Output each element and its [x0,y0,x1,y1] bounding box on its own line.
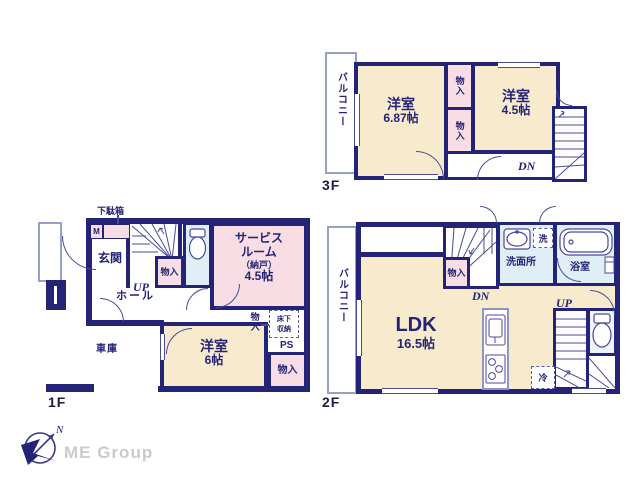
service-room-line4: 4.5帖 [245,270,274,284]
hall-3f [445,151,560,180]
laundry-space: 洗 [533,228,553,248]
stairs-2f-dn-label: DN [472,289,489,304]
floorplan-canvas: バルコニー 洋室 6.87帖 物入 物入 洋室 4.5帖 DN [0,0,640,480]
service-room-label: サービス ルーム （納戸） 4.5帖 [214,232,304,284]
window-3f-balcony [354,94,360,146]
staircase-2f-winder [589,358,615,388]
balcony-3f: バルコニー [325,52,357,174]
staircase-2f-up-treads [556,311,586,387]
toilet-room-2f [587,308,617,356]
fridge-space: 冷 [531,366,555,389]
shoe-cabinet-label: 下駄箱 [96,206,125,216]
toilet-icon-2f [590,313,614,351]
door-arc-garage [62,236,96,270]
garage-bay [38,222,62,282]
shoe-cabinet [103,224,130,239]
stairs-3f-dn-label: DN [518,159,535,174]
shoe-cabinet-leader [117,215,119,224]
garage-pillar-slit [54,286,57,304]
balcony-3f-label: バルコニー [335,72,347,127]
room-3f-45-name: 洋室 [502,88,530,104]
closet-3f-a: 物入 [445,62,474,110]
service-room-line2: ルーム [241,246,277,260]
window-2f-balcony [356,300,362,356]
compass-icon: N [16,420,68,472]
hall-label: ホール [116,290,155,303]
closet-1f-se: 物入 [268,352,307,389]
closet-3f-b: 物入 [445,107,474,154]
corner-closet-label: 物入 [248,312,261,332]
closet-1f-se-label: 物入 [278,365,298,377]
toilet-room-1f [183,222,212,288]
underfloor-storage: 床下 収納 [269,310,299,338]
staircase-3f [552,106,587,182]
window-3f-north [498,62,540,68]
floor3-label: 3F [322,177,340,193]
ldk-label: LDK 16.5帖 [380,314,452,352]
entrance-label: 玄関 [98,252,122,266]
door-arc-1f-toilet [186,288,208,310]
corner-closet-text: 物入 [249,312,259,332]
door-2f-south [572,388,606,394]
closet-3f-b-label: 物入 [454,121,464,141]
balcony-2f-label: バルコニー [336,268,348,323]
wall-1f-hall-bottom [86,320,164,326]
closet-1f-stairs: 物入 [155,256,184,288]
room-3f-45-size: 4.5帖 [502,104,531,118]
room-1f-6-size: 6帖 [205,354,224,368]
window-2f-south [382,388,438,394]
corner-closet-leader [261,324,269,326]
door-arc-2f-washroom [480,206,497,223]
closet-2f: 物入 [443,257,470,289]
brand-logo-text: ME Group [64,443,153,463]
balcony-2f: バルコニー [327,226,357,394]
garage-front-wall [46,384,94,392]
ldk-name: LDK [395,314,436,337]
compass-north-text: N [55,424,64,436]
floor2-label: 2F [322,394,340,410]
bath-panel-icon [604,256,615,274]
meter-box-label: M [93,227,100,236]
staircase-3f-treads [555,109,584,179]
closet-3f-a-label: 物入 [454,76,464,96]
room-3f-687-size: 6.87帖 [383,112,418,126]
closet-2f-label: 物入 [447,268,465,278]
garage-label: 車庫 [96,344,118,356]
window-1f-room6 [160,334,165,360]
underfloor-line1: 床下 [277,314,291,324]
service-room-line1: サービス [235,232,283,246]
floor1-label: 1F [48,394,66,410]
ldk-size: 16.5帖 [397,337,435,352]
closet-1f-stairs-label: 物入 [160,267,178,277]
pipe-space-label: PS [280,340,293,352]
room-3f-687-label: 洋室 6.87帖 [362,96,440,126]
kitchen-fixtures-icon [485,313,506,385]
bathtub-icon [559,228,613,256]
laundry-label: 洗 [538,232,547,245]
staircase-2f-up [553,308,589,390]
sink-icon [503,228,531,250]
room-1f-6-name: 洋室 [200,338,228,354]
fridge-label: 冷 [538,371,547,384]
room-3f-687-name: 洋室 [387,96,415,112]
room-3f-45-label: 洋室 4.5帖 [480,88,552,118]
window-3f-south [384,174,438,180]
toilet-icon-1f [186,228,209,262]
door-arc-2f-hall [539,206,556,223]
underfloor-line2: 収納 [277,324,291,334]
washroom-label: 洗面所 [506,257,536,269]
